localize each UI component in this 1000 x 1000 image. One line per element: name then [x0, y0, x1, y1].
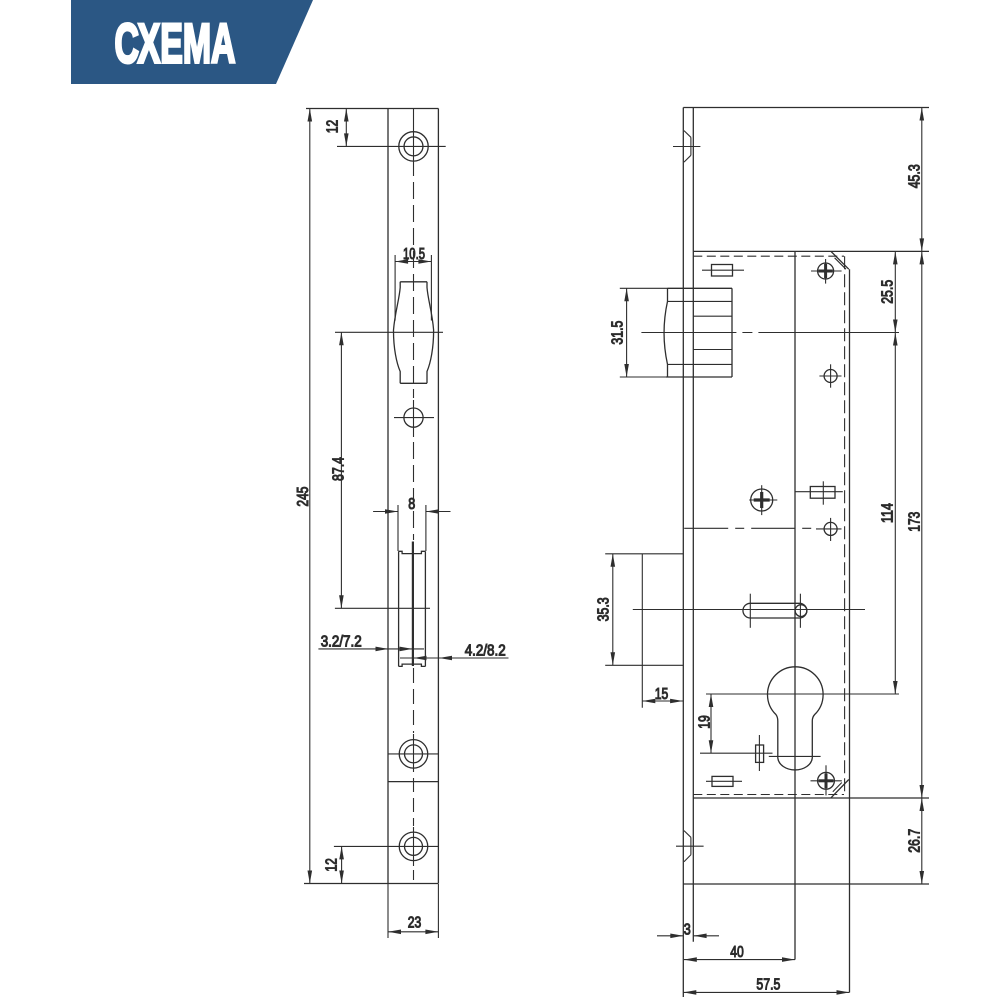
svg-text:10.5: 10.5 — [403, 246, 425, 263]
svg-text:4.2/8.2: 4.2/8.2 — [465, 642, 506, 659]
svg-text:87.4: 87.4 — [330, 457, 347, 481]
svg-text:3: 3 — [684, 922, 691, 939]
svg-text:25.5: 25.5 — [880, 280, 897, 304]
svg-text:26.7: 26.7 — [906, 829, 923, 853]
svg-text:23: 23 — [408, 915, 422, 932]
svg-text:СХЕМА: СХЕМА — [115, 12, 236, 75]
svg-text:3.2/7.2: 3.2/7.2 — [321, 633, 362, 650]
svg-text:57.5: 57.5 — [756, 976, 780, 993]
svg-text:45.3: 45.3 — [906, 164, 923, 188]
svg-text:8: 8 — [408, 496, 415, 513]
svg-text:31.5: 31.5 — [610, 321, 627, 345]
svg-text:245: 245 — [295, 487, 312, 507]
svg-text:114: 114 — [879, 503, 896, 523]
svg-text:19: 19 — [697, 715, 714, 729]
svg-text:173: 173 — [907, 512, 924, 532]
svg-text:12: 12 — [323, 858, 340, 872]
svg-text:12: 12 — [325, 120, 342, 134]
svg-text:40: 40 — [730, 944, 744, 961]
svg-text:35.3: 35.3 — [595, 597, 612, 621]
svg-text:15: 15 — [655, 686, 669, 703]
